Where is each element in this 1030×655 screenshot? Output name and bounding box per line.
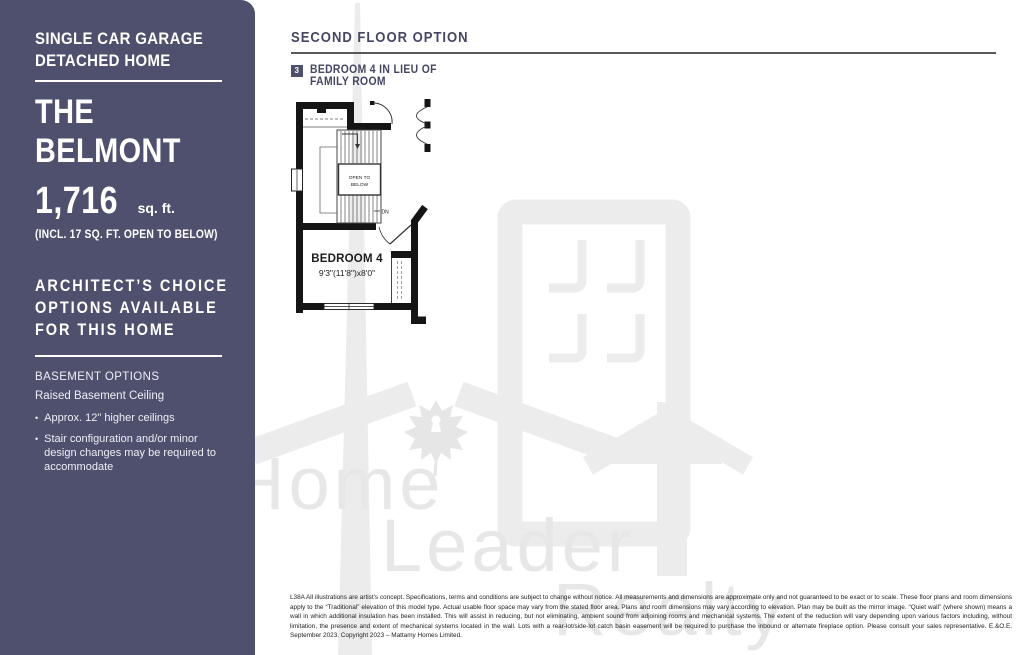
architects-choice-line2: OPTIONS AVAILABLE <box>35 297 218 319</box>
square-footage-value: 1,716 <box>35 180 118 223</box>
architects-choice-line3: FOR THIS HOME <box>35 319 176 341</box>
basement-options-heading: BASEMENT OPTIONS <box>35 371 225 383</box>
option-row: 3 BEDROOM 4 IN LIEU OF FAMILY ROOM <box>291 64 450 88</box>
floorplan-diagonal-wall <box>414 207 425 222</box>
room-dimensions: 9'3"(11'8")x8'0" <box>319 268 375 278</box>
architects-choice-heading: ARCHITECT’S CHOICE OPTIONS AVAILABLE FOR… <box>35 275 235 341</box>
option-number-badge: 3 <box>291 65 303 77</box>
square-footage: 1,716sq. ft. <box>35 180 225 223</box>
model-name-line2: BELMONT <box>35 132 181 171</box>
basement-options-subheading: Raised Basement Ceiling <box>35 390 225 402</box>
square-footage-note: (INCL. 17 SQ. FT. OPEN TO BELOW) <box>35 229 225 241</box>
model-name-line1: THE <box>35 93 94 132</box>
home-type-line1: SINGLE CAR GARAGE <box>35 28 203 50</box>
upper-closet <box>303 119 347 127</box>
square-footage-unit: sq. ft. <box>138 200 175 216</box>
basement-option-item: Stair configuration and/or minor design … <box>35 432 227 474</box>
open-to-below-label-line1: OPEN TO <box>349 175 371 181</box>
page-title-text: SECOND FLOOR OPTION <box>291 30 469 46</box>
open-to-below-label-line2: BELOW <box>351 182 369 188</box>
legal-disclaimer: L38A All illustrations are artist’s conc… <box>290 593 1012 640</box>
brochure-page: Home Leader Realty SECOND FLOOR OPTION 3… <box>0 0 1030 655</box>
option-label: BEDROOM 4 IN LIEU OF FAMILY ROOM <box>310 64 451 88</box>
home-type-line2: DETACHED HOME <box>35 50 171 72</box>
model-name: THE BELMONT <box>35 93 225 171</box>
floorplan-walls <box>296 99 431 324</box>
basement-option-item: Approx. 12" higher ceilings <box>35 411 227 425</box>
sidebar-divider-top <box>35 80 222 82</box>
bedroom-closet <box>392 258 402 303</box>
home-type-heading: SINGLE CAR GARAGE DETACHED HOME <box>35 28 225 71</box>
open-to-below-box: OPEN TO BELOW <box>339 164 381 195</box>
option-label-line2: FAMILY ROOM <box>310 76 386 88</box>
dn-label: DN <box>382 210 390 216</box>
room-label: BEDROOM 4 <box>311 253 383 265</box>
sidebar-divider-bottom <box>35 355 222 357</box>
stair-direction-arrow <box>342 134 358 144</box>
sidebar: SINGLE CAR GARAGE DETACHED HOME THE BELM… <box>0 0 255 655</box>
page-title: SECOND FLOOR OPTION <box>291 30 488 46</box>
floorplan-drawing: OPEN TO BELOW DN <box>278 95 463 340</box>
basement-options-list: Approx. 12" higher ceilings Stair config… <box>35 411 230 474</box>
architects-choice-line1: ARCHITECT’S CHOICE <box>35 275 228 297</box>
header-divider <box>291 52 996 54</box>
option-label-line1: BEDROOM 4 IN LIEU OF <box>310 64 437 76</box>
